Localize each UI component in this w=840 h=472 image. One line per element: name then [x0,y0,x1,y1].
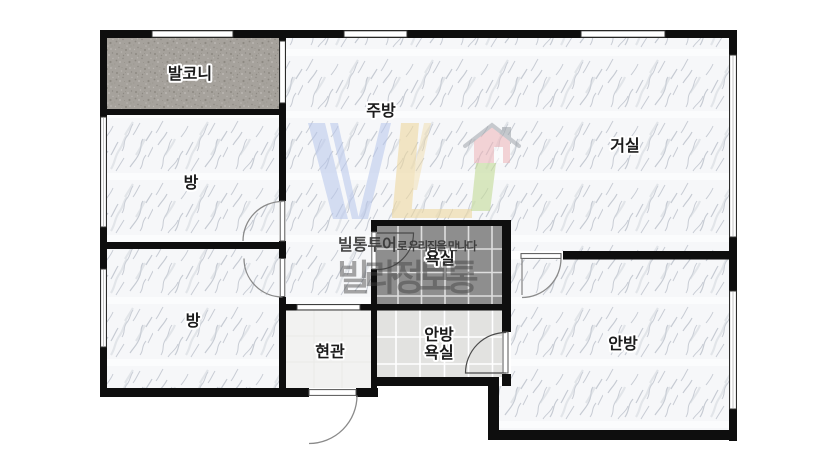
svg-text:안방: 안방 [608,335,638,353]
svg-text:방: 방 [184,174,199,192]
svg-text:거실: 거실 [610,137,639,155]
svg-text:빌라정보통: 빌라정보통 [337,257,477,298]
svg-text:안방: 안방 [424,326,454,344]
svg-text:주방: 주방 [366,102,396,120]
svg-text:욕실: 욕실 [424,344,453,362]
svg-text:방: 방 [186,312,201,330]
svg-text:현관: 현관 [315,342,345,361]
svg-text:발코니: 발코니 [168,65,212,83]
